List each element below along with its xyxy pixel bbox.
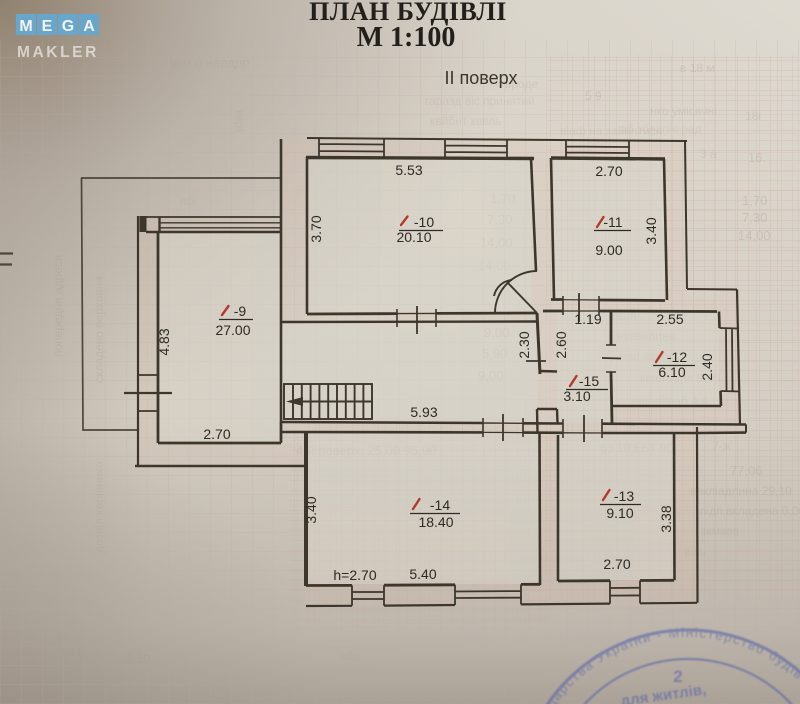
svg-text:18і: 18і [745, 109, 761, 123]
svg-text:2.55: 2.55 [656, 311, 683, 327]
svg-text:18.40: 18.40 [418, 514, 453, 530]
svg-text:5.53: 5.53 [395, 162, 422, 178]
svg-text:квйбнт кввль: квйбнт кввль [430, 114, 502, 128]
svg-text:3 а: 3 а [700, 147, 717, 161]
svg-text:9.10: 9.10 [606, 505, 633, 521]
svg-text:9.00: 9.00 [595, 242, 622, 258]
svg-text:20.10: 20.10 [396, 229, 431, 245]
svg-text:-11: -11 [603, 214, 622, 230]
svg-text:5.93: 5.93 [410, 404, 437, 420]
svg-text:пбі: пбі [180, 194, 196, 208]
svg-text:аб зблапні рад: аб зблапні рад [620, 122, 702, 136]
svg-text:-15: -15 [579, 373, 599, 389]
svg-text:A: A [83, 18, 95, 35]
svg-text:7,30: 7,30 [742, 210, 767, 225]
svg-text:16.: 16. [748, 150, 766, 165]
svg-text:попередня адреса: попередня адреса [51, 254, 65, 357]
svg-text:М 1:100: М 1:100 [357, 22, 456, 53]
svg-text:MAKLER: MAKLER [17, 44, 99, 61]
svg-text:M: M [19, 18, 32, 35]
svg-text:14,00: 14,00 [738, 228, 771, 243]
svg-text:4.83: 4.83 [156, 328, 172, 355]
svg-text:кврт: кврт [233, 110, 247, 134]
svg-text:5 9: 5 9 [585, 89, 602, 103]
svg-text:складено верховна: складено верховна [92, 276, 106, 383]
svg-text:3.40: 3.40 [303, 496, 319, 523]
svg-text:ввкліадлина 29,10: ввкліадлина 29,10 [690, 484, 792, 498]
svg-text:1.19: 1.19 [574, 311, 601, 327]
svg-text:3.38: 3.38 [658, 505, 674, 532]
svg-text:вкм о нарддр: вкм о нарддр [170, 55, 250, 71]
svg-text:-13: -13 [614, 488, 634, 504]
svg-text:2.60: 2.60 [553, 331, 569, 358]
svg-text:дозвіл керівника: дозвіл керівника [92, 461, 106, 553]
svg-text:5.40: 5.40 [409, 566, 436, 582]
svg-text:77,06: 77,06 [730, 463, 763, 478]
svg-text:3.10: 3.10 [563, 388, 590, 404]
svg-text:7-ж: 7-ж [712, 439, 731, 453]
svg-text:гаразд віс принятий: гаразд віс принятий [425, 94, 535, 108]
svg-text:27.00: 27.00 [215, 322, 250, 338]
svg-text:2.70: 2.70 [595, 163, 622, 179]
svg-text:E: E [42, 18, 53, 35]
svg-text:2: 2 [673, 667, 682, 686]
svg-text:2,10: 2,10 [125, 651, 150, 666]
svg-text:-14: -14 [430, 497, 450, 513]
svg-text:14,0: 14,0 [60, 645, 85, 660]
svg-text:6.10: 6.10 [658, 364, 685, 380]
svg-text:ІІ поверх: ІІ поверх [445, 68, 518, 88]
svg-text:2.70: 2.70 [603, 556, 630, 572]
svg-text:1,70: 1,70 [742, 193, 767, 208]
svg-text:G: G [62, 18, 74, 35]
svg-text:вбд: вбд [340, 649, 360, 663]
svg-text:3.40: 3.40 [643, 217, 659, 244]
svg-text:вкмавв: вкмавв [700, 524, 739, 538]
svg-text:2.30: 2.30 [516, 331, 532, 358]
svg-text:3.70: 3.70 [308, 215, 324, 242]
svg-text:2.40: 2.40 [699, 353, 715, 380]
svg-text:підп вкладена 0,00: підп вкладена 0,00 [700, 504, 800, 518]
svg-text:-9: -9 [234, 303, 247, 319]
svg-text:-12: -12 [667, 349, 687, 365]
svg-text:-10: -10 [414, 214, 434, 230]
svg-text:нко умісячні: нко умісячні [650, 104, 717, 118]
svg-text:в 18 м: в 18 м [680, 61, 715, 75]
svg-text:h=2.70: h=2.70 [333, 567, 376, 583]
svg-text:2.70: 2.70 [203, 426, 230, 442]
